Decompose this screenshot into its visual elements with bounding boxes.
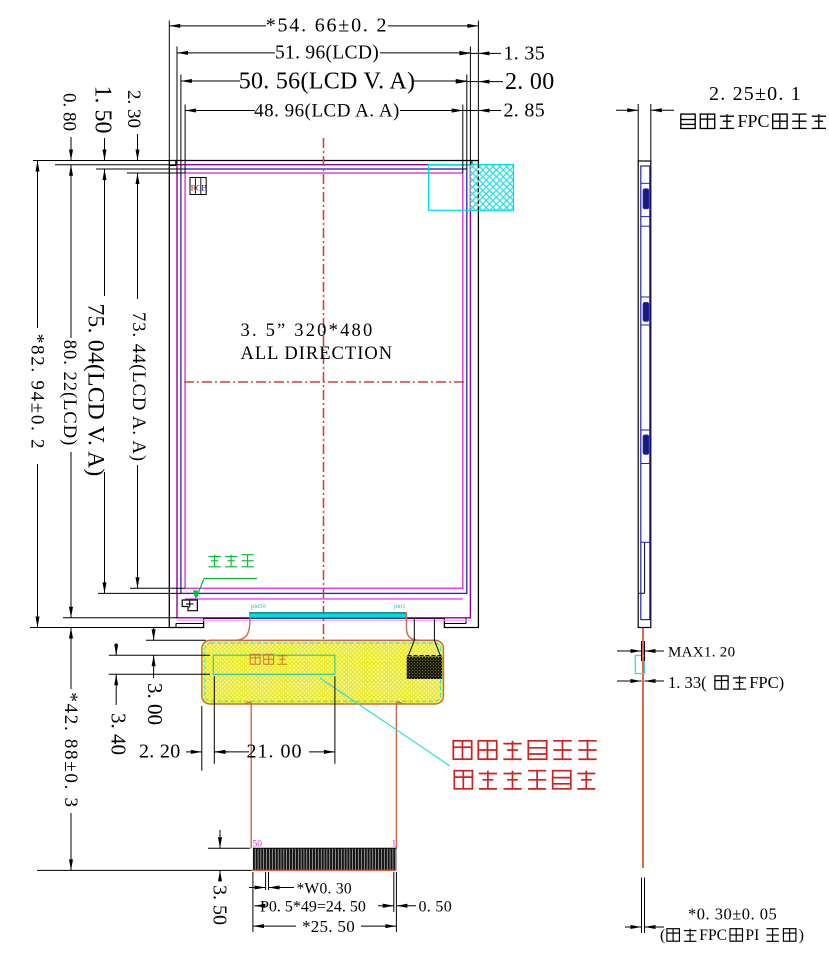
svg-text:51. 96(LCD): 51. 96(LCD) <box>275 43 379 64</box>
svg-text:pin50: pin50 <box>251 603 266 610</box>
svg-text:1. 35: 1. 35 <box>504 43 546 65</box>
svg-text:FPC: FPC <box>699 927 727 944</box>
svg-text:*82. 94±0. 2: *82. 94±0. 2 <box>27 334 48 450</box>
svg-text:FPC): FPC) <box>749 673 784 692</box>
svg-text:*W0. 30: *W0. 30 <box>297 881 352 898</box>
svg-text:P0. 5*49=24. 50: P0. 5*49=24. 50 <box>260 899 366 916</box>
svg-text:50. 56(LCD V. A): 50. 56(LCD V. A) <box>239 69 416 95</box>
svg-text:*54. 66±0. 2: *54. 66±0. 2 <box>266 15 389 37</box>
svg-text:*0. 30±0. 05: *0. 30±0. 05 <box>688 905 777 924</box>
svg-text:21. 00: 21. 00 <box>247 741 303 763</box>
svg-text:3. 00: 3. 00 <box>143 683 167 725</box>
svg-text:1: 1 <box>392 840 397 850</box>
svg-text:): ) <box>799 927 804 944</box>
svg-text:pin1: pin1 <box>394 603 406 610</box>
svg-text:2. 00: 2. 00 <box>505 69 555 95</box>
svg-text:1. 33(: 1. 33( <box>668 673 707 692</box>
svg-text:0. 50: 0. 50 <box>419 899 453 916</box>
svg-text:3. 5” 320*480: 3. 5” 320*480 <box>241 321 375 341</box>
svg-text:ALL DIRECTION: ALL DIRECTION <box>241 344 394 364</box>
svg-text:3. 40: 3. 40 <box>107 713 131 755</box>
svg-text:MAX1. 20: MAX1. 20 <box>668 645 735 661</box>
svg-text:B: B <box>201 183 207 193</box>
svg-text:*42. 88±0. 3: *42. 88±0. 3 <box>60 692 81 808</box>
svg-text:48. 96(LCD A. A): 48. 96(LCD A. A) <box>254 101 400 122</box>
svg-text:2. 20: 2. 20 <box>139 741 181 763</box>
svg-text:PI: PI <box>745 927 759 944</box>
svg-text:2. 30: 2. 30 <box>123 90 144 128</box>
svg-text:80. 22(LCD): 80. 22(LCD) <box>59 340 79 447</box>
svg-text:1. 50: 1. 50 <box>90 86 116 134</box>
svg-text:75. 04(LCD V. A): 75. 04(LCD V. A) <box>83 303 109 476</box>
svg-text:(: ( <box>660 927 665 944</box>
svg-text:0. 80: 0. 80 <box>59 93 80 131</box>
svg-text:3. 50: 3. 50 <box>209 885 231 925</box>
svg-text:2. 85: 2. 85 <box>504 100 546 122</box>
svg-text:FPC: FPC <box>738 111 770 131</box>
svg-text:2. 25±0. 1: 2. 25±0. 1 <box>709 83 802 105</box>
svg-text:73. 44(LCD A. A): 73. 44(LCD A. A) <box>128 312 148 462</box>
svg-text:*25. 50: *25. 50 <box>302 917 355 936</box>
svg-text:50: 50 <box>253 840 263 850</box>
